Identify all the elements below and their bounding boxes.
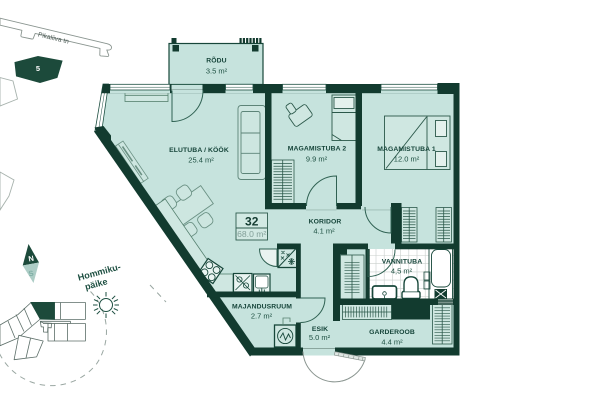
svg-text:4.4 m²: 4.4 m² xyxy=(381,338,403,347)
svg-text:MAGAMISTUBA 2: MAGAMISTUBA 2 xyxy=(288,146,347,153)
svg-text:25.4 m²: 25.4 m² xyxy=(188,156,214,165)
svg-text:2.7 m²: 2.7 m² xyxy=(251,312,273,321)
svg-text:5.0 m²: 5.0 m² xyxy=(309,333,331,342)
svg-text:VANNITUBA: VANNITUBA xyxy=(382,259,422,266)
svg-text:MAGAMISTUBA 1: MAGAMISTUBA 1 xyxy=(377,146,436,153)
svg-text:32: 32 xyxy=(245,214,259,228)
svg-text:MAJANDUSRUUM: MAJANDUSRUUM xyxy=(232,304,292,311)
svg-text:4,5 m²: 4,5 m² xyxy=(391,267,413,276)
svg-text:ESIK: ESIK xyxy=(312,326,328,333)
svg-text:12.0 m²: 12.0 m² xyxy=(394,155,420,164)
svg-text:ELUTUBA / KÖÖK: ELUTUBA / KÖÖK xyxy=(169,145,229,154)
svg-text:4.1 m²: 4.1 m² xyxy=(313,227,335,236)
svg-text:KORIDOR: KORIDOR xyxy=(309,219,342,226)
svg-text:9.9 m²: 9.9 m² xyxy=(306,155,328,164)
svg-text:5: 5 xyxy=(36,64,40,73)
svg-text:68.0 m²: 68.0 m² xyxy=(237,229,266,239)
svg-text:RÕDU: RÕDU xyxy=(206,56,226,65)
svg-text:GARDEROOB: GARDEROOB xyxy=(369,329,415,336)
svg-text:3.5 m²: 3.5 m² xyxy=(206,67,228,76)
